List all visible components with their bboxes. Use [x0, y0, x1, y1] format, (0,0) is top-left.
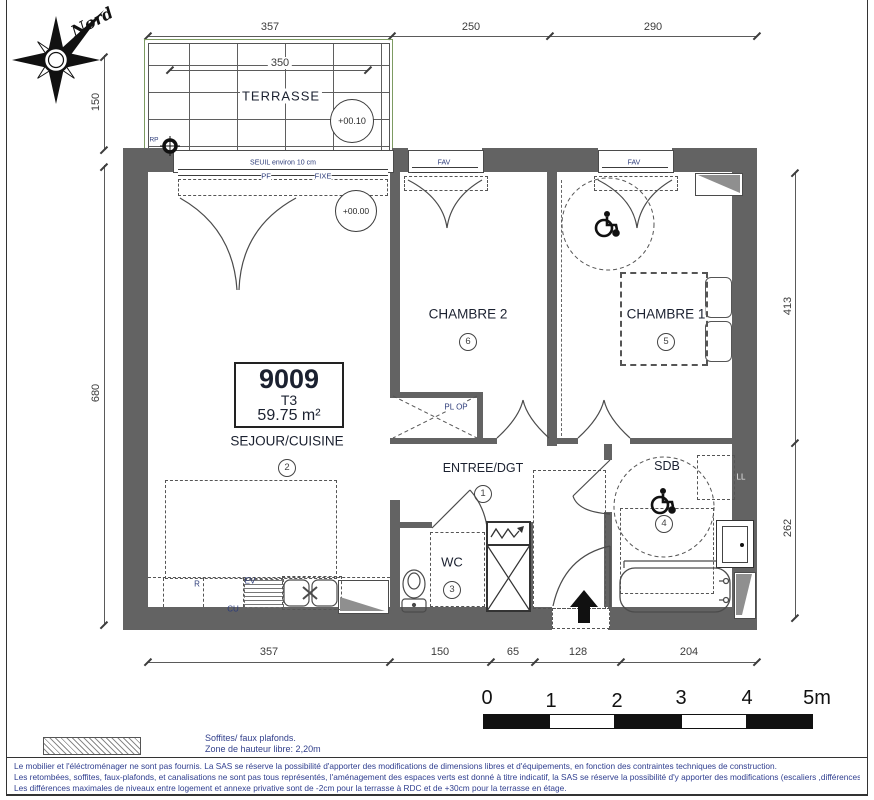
wc-label: WC: [441, 555, 463, 570]
lot-type: T3: [281, 393, 297, 408]
soffit-wedge-sdb: [736, 574, 752, 615]
bathtub-icon: [620, 568, 730, 612]
rp-icon: [160, 136, 180, 156]
chambre2-number: 6: [459, 333, 477, 351]
electrical-panel-icon: [487, 522, 530, 545]
sejour-number: 2: [278, 459, 296, 477]
lot-number: 9009: [259, 365, 319, 393]
scale-1: 1: [545, 690, 556, 713]
entree-label: ENTREE/DGT: [443, 461, 524, 475]
chambre1-number: 5: [657, 333, 675, 351]
chambre1-label: CHAMBRE 1: [627, 307, 706, 322]
scale-2: 2: [611, 690, 622, 713]
entree-number: 1: [474, 485, 492, 503]
toilet-icon: [402, 570, 426, 612]
wc-number: 3: [443, 581, 461, 599]
sdb-label: SDB: [654, 459, 680, 473]
disclaimer-line3: Les différences maximales de niveaux ent…: [14, 783, 860, 793]
disclaimer-line2: Les retombées, soffites, faux-plafonds, …: [14, 772, 860, 782]
chambre2-casement: [408, 180, 447, 228]
title-block: 9009 T3 59.75 m²: [234, 362, 344, 428]
legend-line1: Soffites/ faux plafonds.: [205, 733, 296, 743]
wc-door-leaf: [432, 490, 470, 528]
legend-line2: Zone de hauteur libre: 2,20m: [205, 744, 321, 754]
shaft-icon: [487, 545, 530, 611]
chambre2-label: CHAMBRE 2: [429, 307, 508, 322]
wheelchair-icon-chambre1: [596, 211, 619, 236]
lot-area: 59.75 m²: [257, 408, 320, 425]
scale-4: 4: [741, 687, 752, 710]
soffit-legend-swatch: [43, 737, 141, 755]
closet-label: PL OP: [443, 403, 468, 412]
kitchen-sink-icon: [284, 580, 337, 606]
sdb-door-leaf: [573, 460, 610, 496]
chambre1-door-swing: [578, 400, 604, 438]
wheelchair-icon-sdb: [652, 488, 675, 513]
sdb-number: 4: [655, 515, 673, 533]
soffit-wedge-kitchen: [340, 597, 385, 611]
disclaimer-line1: Le mobilier et l'éléctroménager ne sont …: [14, 761, 860, 771]
terrace-door-swing: [180, 198, 237, 290]
chambre2-door-swing: [497, 400, 523, 438]
floor-plan-sheet: Nord 357 250 290 150 680 413 262 357 150…: [0, 0, 874, 800]
scale-3: 3: [675, 687, 686, 710]
sejour-label: SEJOUR/CUISINE: [230, 434, 343, 449]
scale-5m: 5m: [803, 687, 831, 710]
scale-0: 0: [481, 687, 492, 710]
soffit-wedge-chambre1: [698, 175, 740, 193]
plan-linework: [0, 0, 874, 800]
